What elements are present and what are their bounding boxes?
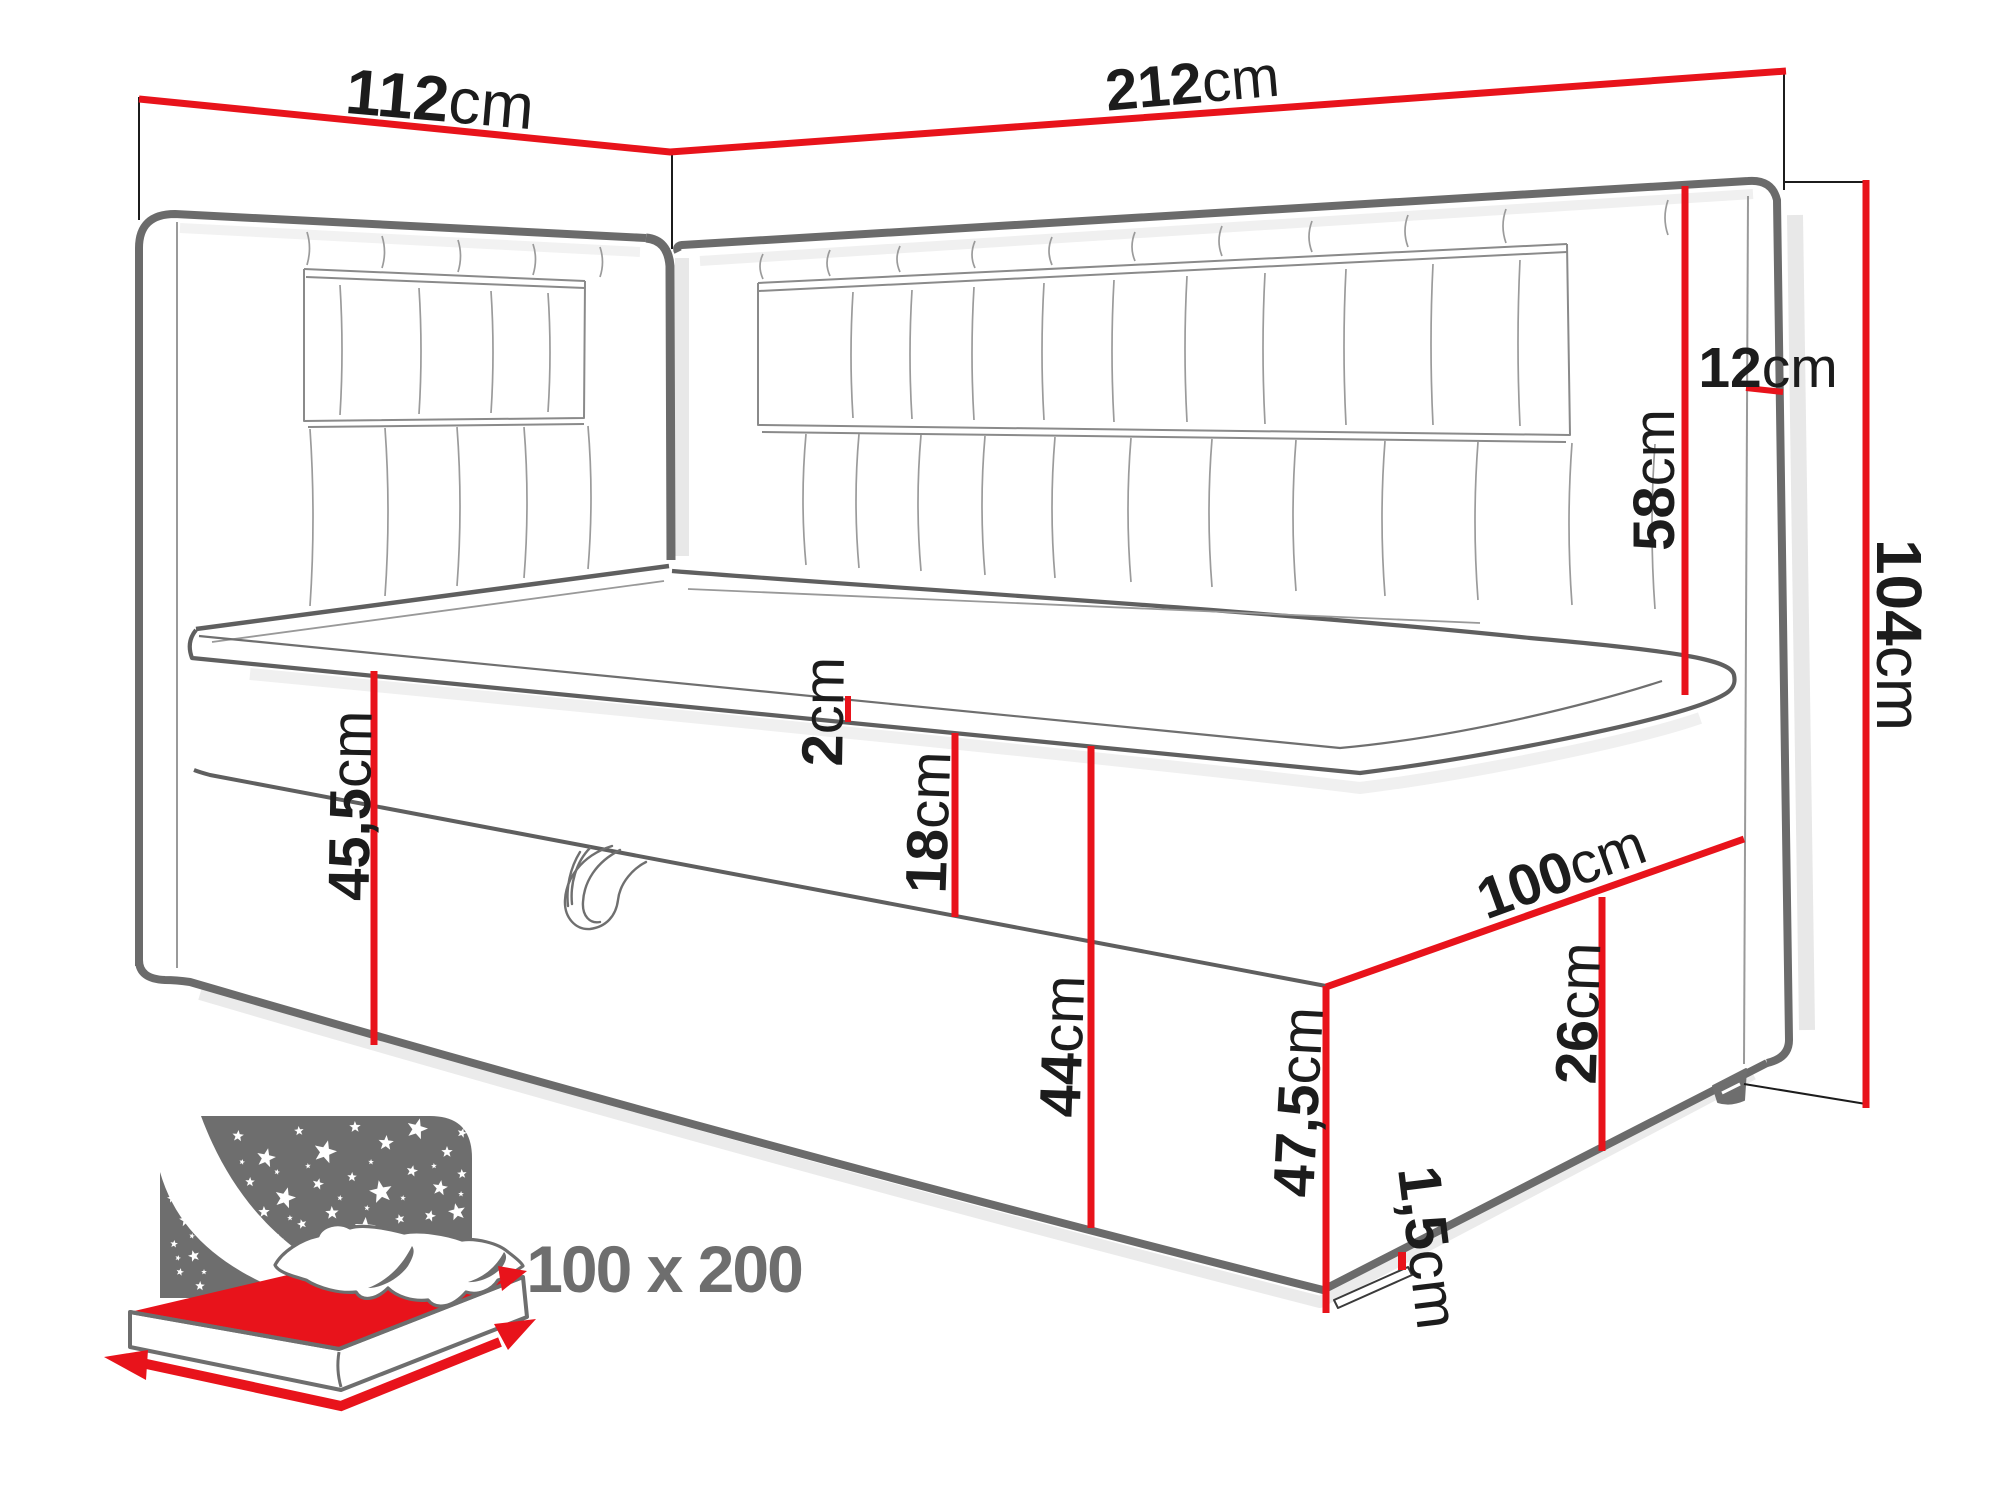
svg-text:26cm: 26cm [1544, 941, 1614, 1085]
svg-text:44cm: 44cm [1028, 974, 1098, 1118]
svg-text:18cm: 18cm [894, 750, 964, 894]
svg-text:12cm: 12cm [1698, 336, 1837, 400]
svg-text:2cm: 2cm [790, 656, 857, 767]
svg-text:58cm: 58cm [1622, 409, 1687, 551]
svg-text:45,5cm: 45,5cm [316, 710, 384, 901]
svg-text:100 x 200: 100 x 200 [526, 1232, 802, 1306]
svg-text:104cm: 104cm [1863, 539, 1935, 731]
svg-text:47,5cm: 47,5cm [1261, 1005, 1336, 1198]
